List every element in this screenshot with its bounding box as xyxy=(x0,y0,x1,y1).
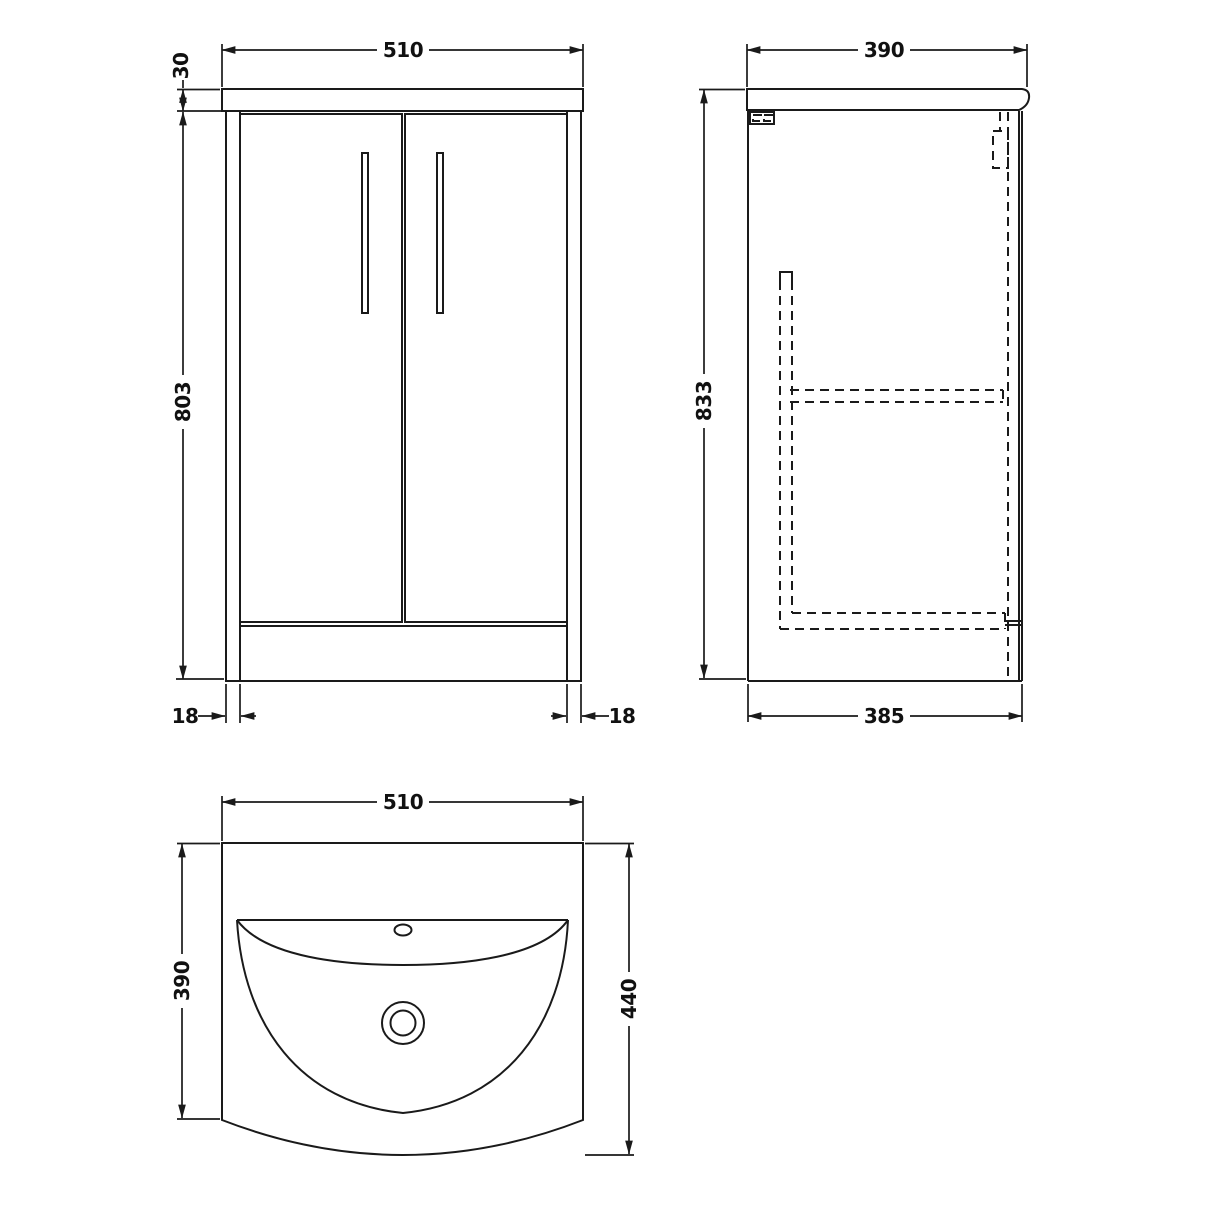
tap-hole xyxy=(395,925,412,936)
front-left-panel-dimension: 18 xyxy=(172,684,256,728)
side-depth-label: 390 xyxy=(864,38,904,62)
front-left-panel-label: 18 xyxy=(172,704,199,728)
basin-outline xyxy=(222,843,583,1155)
side-back-channel-hidden xyxy=(780,272,792,629)
front-worktop xyxy=(222,89,583,111)
front-right-door xyxy=(405,114,567,622)
front-worktop-thickness-label: 30 xyxy=(169,53,193,80)
side-height-dimension: 833 xyxy=(692,90,746,680)
front-left-door xyxy=(240,114,402,622)
drawing-canvas: 510 30 803 18 xyxy=(0,0,1214,1214)
front-view: 510 30 803 18 xyxy=(169,38,635,728)
channel-cap xyxy=(780,272,792,281)
plan-basin-depth-label: 390 xyxy=(170,961,194,1001)
side-view: 390 833 385 xyxy=(692,38,1029,728)
plan-width-label: 510 xyxy=(383,790,423,814)
plan-overall-depth-dimension: 440 xyxy=(585,844,641,1156)
front-left-side-panel xyxy=(226,111,240,681)
front-width-dimension: 510 xyxy=(222,38,583,87)
plan-width-dimension: 510 xyxy=(222,790,583,841)
hinge-body-hidden xyxy=(993,131,1008,168)
front-cabinet-height-dimension: 803 xyxy=(171,112,224,679)
side-base-depth-label: 385 xyxy=(864,704,904,728)
side-top-hinge-hidden xyxy=(993,112,1008,168)
front-worktop-thickness-dimension: 30 xyxy=(169,53,224,111)
plan-view: 510 390 440 xyxy=(170,790,641,1155)
waste-drain-hole xyxy=(391,1011,416,1036)
front-right-side-panel xyxy=(567,111,581,681)
plan-basin-depth-dimension: 390 xyxy=(170,844,220,1120)
side-height-label: 833 xyxy=(692,381,716,421)
front-right-panel-dimension: 18 xyxy=(551,684,635,728)
front-left-door-handle xyxy=(362,153,368,313)
plan-overall-depth-label: 440 xyxy=(617,979,641,1019)
front-width-label: 510 xyxy=(383,38,423,62)
front-cabinet-height-label: 803 xyxy=(171,382,195,422)
side-depth-dimension: 390 xyxy=(747,38,1027,87)
technical-drawing: 510 30 803 18 xyxy=(0,0,1214,1214)
side-shelf-hidden xyxy=(790,390,1003,402)
side-bottom-panel-hidden xyxy=(780,613,1022,629)
bracket-body xyxy=(750,112,774,124)
side-base-depth-dimension: 385 xyxy=(748,684,1022,728)
side-worktop-profile xyxy=(747,89,1029,110)
front-right-door-handle xyxy=(437,153,443,313)
front-right-panel-label: 18 xyxy=(609,704,636,728)
side-wall-bracket xyxy=(750,112,774,124)
